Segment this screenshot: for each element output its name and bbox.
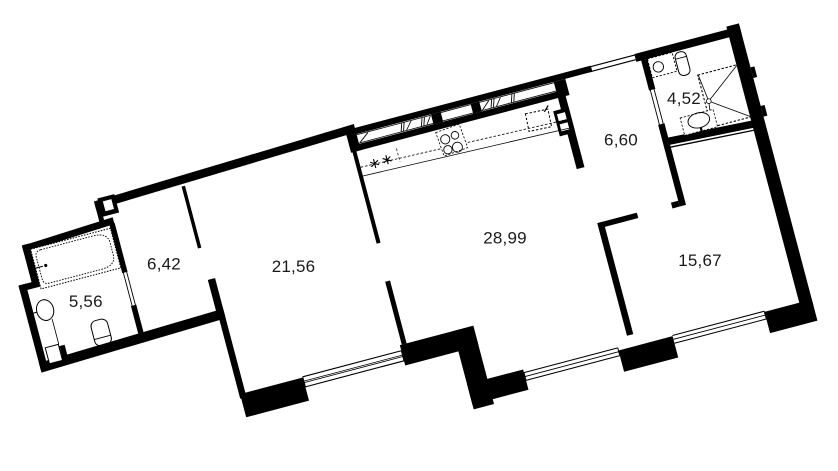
svg-text:28,99: 28,99 [483, 228, 527, 247]
svg-text:5,56: 5,56 [69, 292, 103, 311]
svg-text:6,60: 6,60 [604, 130, 638, 149]
svg-text:4,52: 4,52 [667, 89, 701, 108]
svg-text:6,42: 6,42 [147, 254, 181, 273]
svg-text:15,67: 15,67 [678, 251, 722, 270]
svg-text:21,56: 21,56 [272, 257, 316, 276]
